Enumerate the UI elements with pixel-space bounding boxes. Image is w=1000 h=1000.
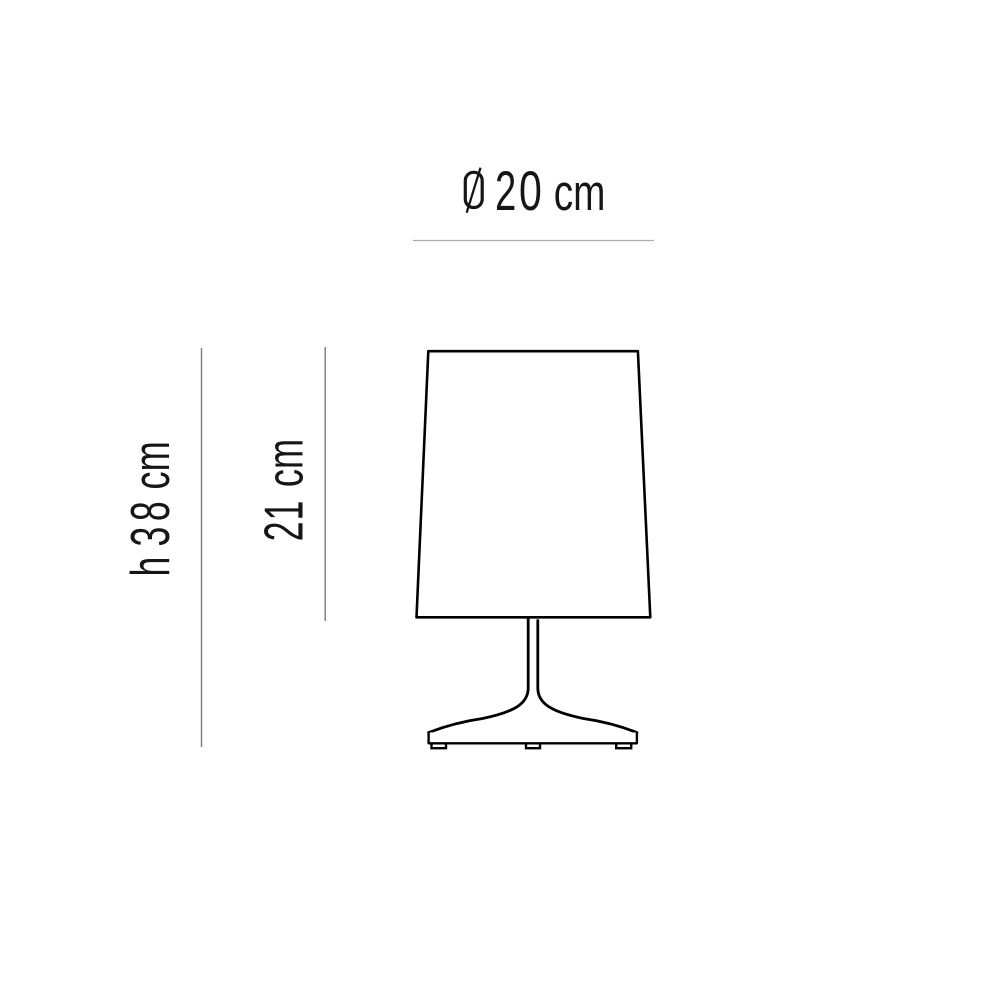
svg-text:h: h bbox=[120, 557, 182, 577]
svg-text:cm: cm bbox=[258, 439, 315, 487]
svg-text:38: 38 bbox=[120, 496, 182, 547]
svg-text:cm: cm bbox=[554, 164, 606, 221]
svg-text:2: 2 bbox=[495, 161, 516, 223]
svg-text:cm: cm bbox=[124, 441, 181, 489]
svg-text:21: 21 bbox=[253, 500, 315, 542]
svg-text:0: 0 bbox=[519, 161, 542, 222]
